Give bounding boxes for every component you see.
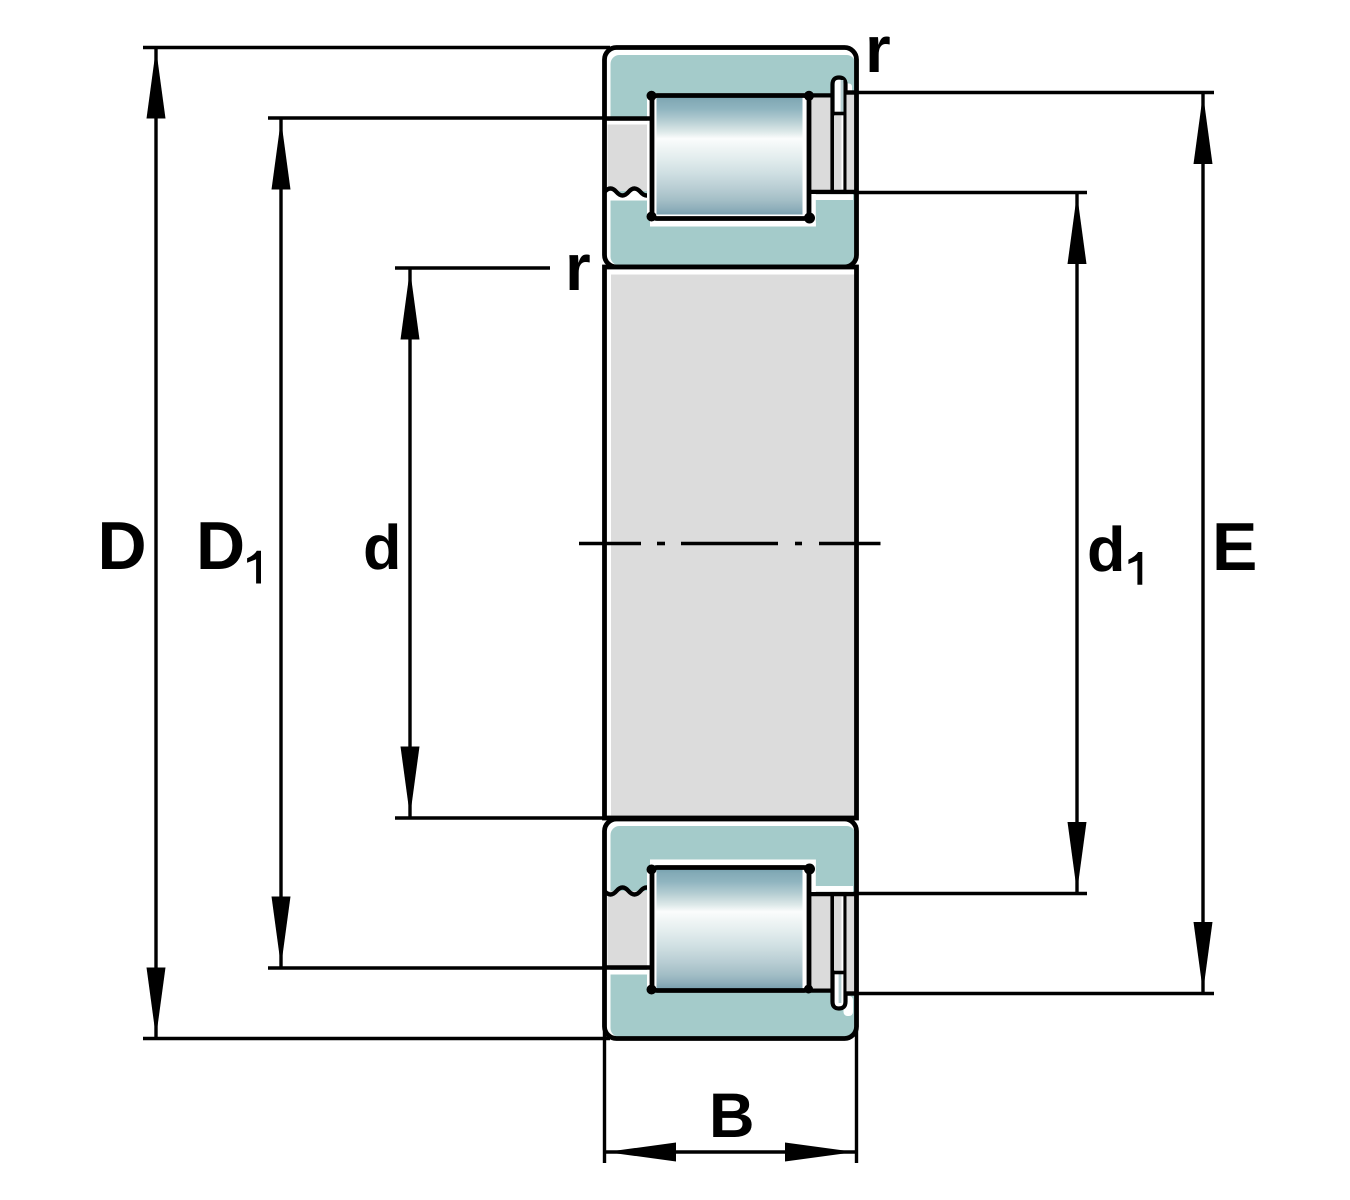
svg-text:D: D <box>196 508 245 584</box>
svg-text:B: B <box>709 1081 755 1151</box>
svg-text:d: d <box>1087 515 1125 585</box>
svg-text:d: d <box>363 513 401 583</box>
svg-text:r: r <box>565 230 591 304</box>
svg-text:D: D <box>97 508 146 584</box>
svg-text:E: E <box>1212 509 1257 585</box>
svg-text:r: r <box>865 12 891 86</box>
